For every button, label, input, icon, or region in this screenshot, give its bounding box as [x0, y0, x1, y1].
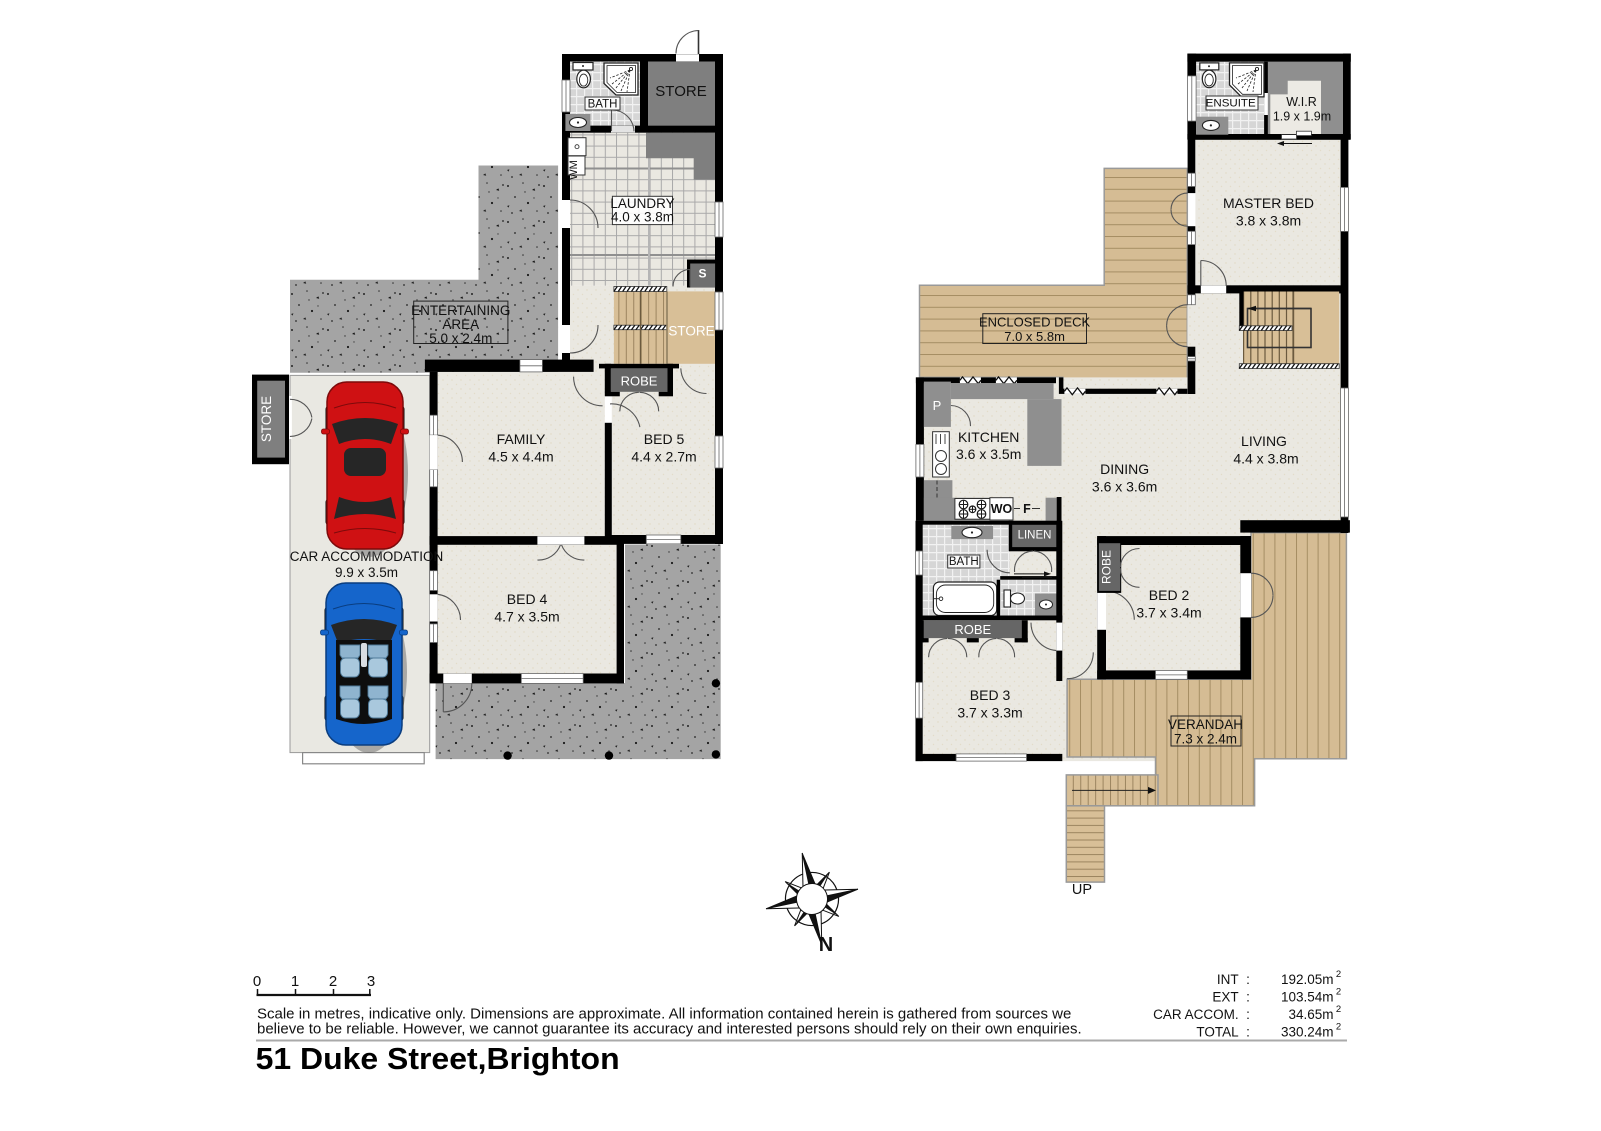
svg-text:3.6 x 3.6m: 3.6 x 3.6m [1092, 479, 1157, 495]
svg-text:VERANDAH: VERANDAH [1168, 717, 1243, 732]
svg-text:INT: INT [1217, 972, 1239, 987]
svg-text:believe to be reliable. Howeve: believe to be reliable. However, we cann… [257, 1021, 1082, 1038]
svg-text:7.3 x 2.4m: 7.3 x 2.4m [1174, 732, 1237, 747]
svg-text::: : [1246, 1025, 1250, 1040]
svg-text:ENSUITE: ENSUITE [1206, 98, 1256, 110]
svg-text:2: 2 [1336, 987, 1341, 998]
svg-text:3.7 x 3.3m: 3.7 x 3.3m [957, 705, 1022, 721]
svg-text:EXT: EXT [1212, 990, 1238, 1005]
svg-text:BATH: BATH [588, 99, 618, 111]
svg-text:4.4 x 2.7m: 4.4 x 2.7m [631, 449, 696, 465]
svg-text:FAMILY: FAMILY [497, 431, 546, 447]
svg-text:34.65m: 34.65m [1288, 1007, 1333, 1022]
svg-text:WM: WM [568, 160, 580, 180]
svg-text:P: P [933, 398, 942, 413]
svg-text:BED 5: BED 5 [644, 431, 685, 447]
svg-text:STORE: STORE [259, 396, 274, 442]
svg-text:S: S [698, 267, 706, 281]
svg-text:TOTAL: TOTAL [1196, 1025, 1239, 1040]
svg-text:CAR ACCOM.: CAR ACCOM. [1153, 1007, 1239, 1022]
svg-text:N: N [819, 934, 833, 956]
svg-text:KITCHEN: KITCHEN [958, 429, 1019, 445]
svg-text:BED 4: BED 4 [507, 591, 548, 607]
svg-text:4.5 x 4.4m: 4.5 x 4.4m [488, 449, 553, 465]
svg-text:AREA: AREA [442, 317, 479, 332]
svg-text:ENTERTAINING: ENTERTAINING [411, 303, 510, 318]
svg-text:WO: WO [991, 502, 1013, 516]
svg-text:ROBE: ROBE [1100, 550, 1114, 584]
svg-text:4.0 x 3.8m: 4.0 x 3.8m [611, 210, 674, 225]
svg-text:9.9 x 3.5m: 9.9 x 3.5m [335, 565, 398, 580]
svg-text:ROBE: ROBE [954, 622, 991, 637]
svg-text:UP: UP [1072, 882, 1092, 898]
svg-text:W.I.R: W.I.R [1286, 95, 1317, 109]
svg-text:103.54m: 103.54m [1281, 990, 1334, 1005]
svg-text:330.24m: 330.24m [1281, 1025, 1334, 1040]
svg-text:0: 0 [253, 973, 261, 990]
svg-text::: : [1246, 1007, 1250, 1022]
svg-text:ENCLOSED DECK: ENCLOSED DECK [979, 314, 1091, 329]
svg-text:MASTER BED: MASTER BED [1223, 195, 1314, 211]
svg-text:DINING: DINING [1100, 461, 1149, 477]
svg-text:1: 1 [291, 973, 299, 990]
svg-text:3.7 x 3.4m: 3.7 x 3.4m [1136, 605, 1201, 621]
svg-text:2: 2 [329, 973, 337, 990]
svg-text:LIVING: LIVING [1241, 433, 1287, 449]
svg-text:1.9 x 1.9m: 1.9 x 1.9m [1273, 110, 1331, 124]
svg-text:BED 3: BED 3 [970, 687, 1011, 703]
svg-text:ROBE: ROBE [621, 374, 658, 389]
svg-text:LINEN: LINEN [1018, 530, 1052, 542]
svg-text:BATH: BATH [949, 556, 979, 568]
svg-text:51 Duke Street,Brighton: 51 Duke Street,Brighton [256, 1041, 620, 1076]
svg-text:STORE: STORE [668, 324, 714, 339]
svg-text:5.0 x 2.4m: 5.0 x 2.4m [429, 331, 492, 346]
svg-text:192.05m: 192.05m [1281, 972, 1334, 987]
svg-text:2: 2 [1336, 1022, 1341, 1033]
svg-text:F: F [1023, 502, 1031, 516]
svg-text:STORE: STORE [655, 83, 706, 100]
svg-text:3.6 x 3.5m: 3.6 x 3.5m [956, 446, 1021, 462]
svg-text:2: 2 [1336, 1004, 1341, 1015]
svg-text::: : [1246, 990, 1250, 1005]
svg-text:7.0 x 5.8m: 7.0 x 5.8m [1004, 329, 1065, 344]
svg-text:BED 2: BED 2 [1149, 587, 1190, 603]
svg-text:3.8 x 3.8m: 3.8 x 3.8m [1236, 213, 1301, 229]
svg-text:3: 3 [367, 973, 375, 990]
svg-text:2: 2 [1336, 969, 1341, 980]
svg-text:4.7 x 3.5m: 4.7 x 3.5m [494, 609, 559, 625]
svg-text::: : [1246, 972, 1250, 987]
svg-text:4.4 x 3.8m: 4.4 x 3.8m [1233, 451, 1298, 467]
